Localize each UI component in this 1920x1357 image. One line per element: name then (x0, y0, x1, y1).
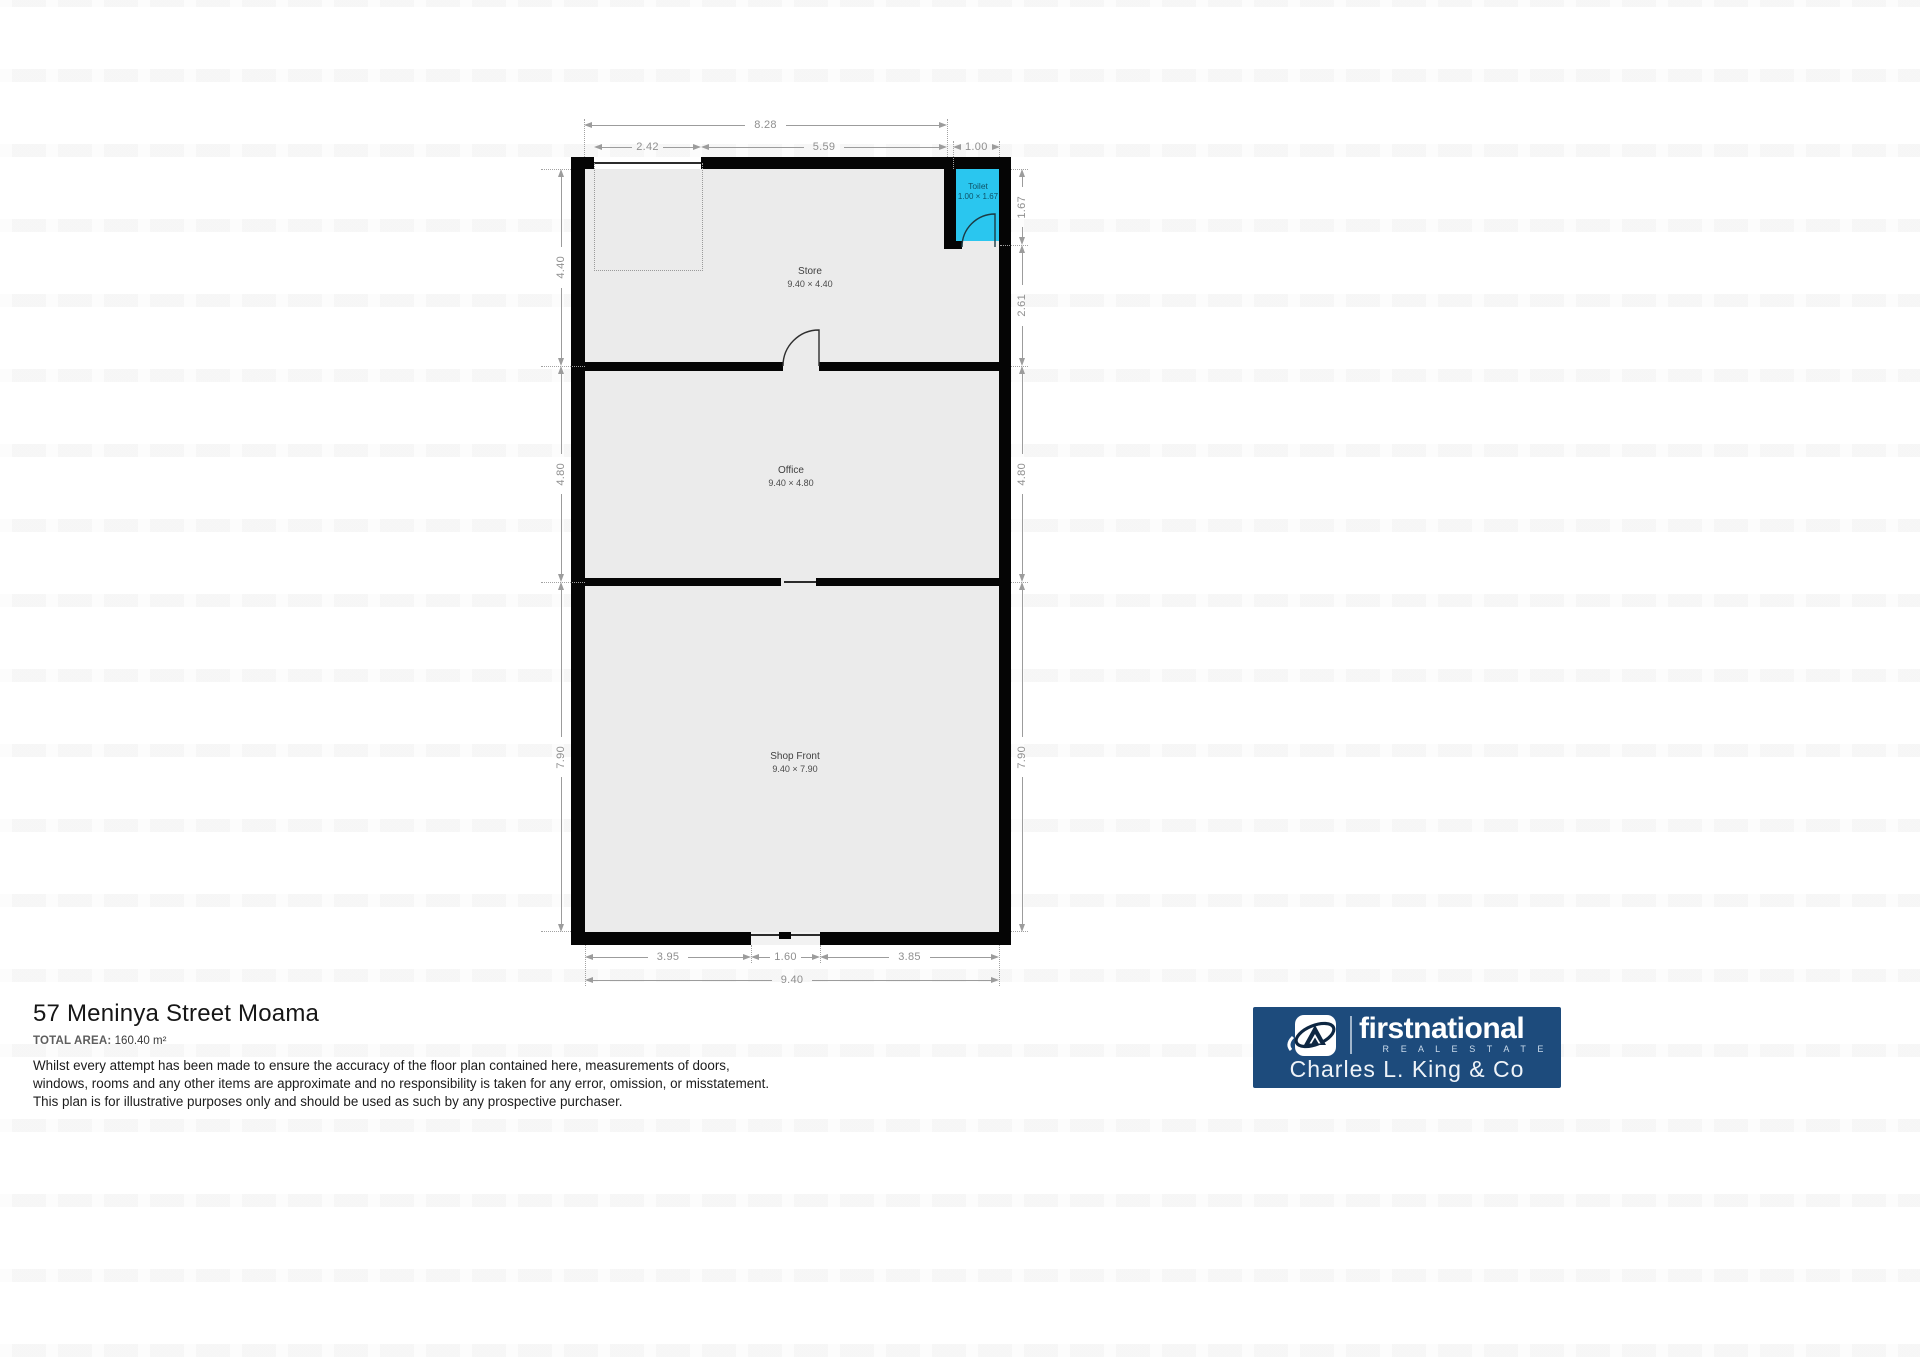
dim-label: 8.28 (745, 119, 786, 131)
agency-logo: firstnational R E A L E S T A T E Charle… (1253, 1007, 1561, 1088)
dim-label: 1.60 (770, 951, 801, 963)
page: { "colors": { "wall": "#050505", "room_f… (0, 0, 1920, 1357)
dim-right-store: 2.61 (1016, 245, 1028, 366)
door-arcs (0, 0, 1920, 1357)
dim-top-mid: 5.59 (701, 141, 947, 153)
dim-label: 7.90 (1016, 737, 1028, 778)
room-size: 9.40 × 4.80 (768, 478, 813, 489)
dim-right-shop: 7.90 (1016, 582, 1028, 932)
dim-bottom-total: 9.40 (585, 974, 999, 986)
dim-label: 9.40 (772, 974, 813, 986)
floor-plan: Store 9.40 × 4.40 Office 9.40 × 4.80 Sho… (0, 0, 1920, 1357)
dim-right-office: 4.80 (1016, 366, 1028, 582)
company-name: Charles L. King & Co (1253, 1056, 1561, 1083)
dim-label: 7.90 (555, 737, 567, 778)
room-name: Store (787, 266, 832, 279)
brand-name: firstnational (1359, 1012, 1524, 1046)
dim-bottom-right: 3.85 (820, 951, 999, 963)
disclaimer-line: Whilst every attempt has been made to en… (33, 1057, 769, 1075)
dim-bottom-left: 3.95 (585, 951, 751, 963)
brand-row: firstnational R E A L E S T A T E (1253, 1007, 1561, 1059)
logo-divider (1350, 1016, 1352, 1054)
total-area: TOTAL AREA: 160.40 m² (33, 1035, 769, 1047)
page-title: 57 Meninya Street Moama (33, 1000, 769, 1028)
dim-top-toilet: 1.00 (953, 141, 999, 153)
dim-label: 3.85 (889, 951, 930, 963)
room-name: Toilet (958, 181, 998, 192)
dim-left-office: 4.80 (555, 366, 567, 582)
dim-label: 2.42 (632, 141, 663, 153)
room-size: 1.00 × 1.67 (958, 192, 998, 202)
dim-bottom-door: 1.60 (751, 951, 820, 963)
room-size: 9.40 × 4.40 (787, 279, 832, 290)
door-arc-toilet (962, 214, 995, 247)
dim-label: 1.67 (1016, 187, 1028, 228)
dim-label: 4.80 (555, 454, 567, 495)
total-area-label: TOTAL AREA: (33, 1035, 111, 1047)
dim-label: 1.00 (961, 141, 992, 153)
dim-label: 2.61 (1016, 285, 1028, 326)
room-size: 9.40 × 7.90 (770, 764, 819, 775)
dim-left-store: 4.40 (555, 169, 567, 366)
dim-label: 4.40 (555, 247, 567, 288)
dim-label: 5.59 (804, 141, 845, 153)
disclaimer-line: This plan is for illustrative purposes o… (33, 1093, 769, 1111)
dim-label: 4.80 (1016, 454, 1028, 495)
room-name: Office (768, 465, 813, 478)
room-name: Shop Front (770, 751, 819, 764)
dim-top-total: 8.28 (584, 119, 947, 131)
dim-label: 3.95 (648, 951, 689, 963)
firstnational-logo-icon (1286, 1013, 1344, 1059)
disclaimer: Whilst every attempt has been made to en… (33, 1057, 769, 1111)
room-label-office: Office 9.40 × 4.80 (768, 465, 813, 489)
room-label-shop-front: Shop Front 9.40 × 7.90 (770, 751, 819, 775)
disclaimer-line: windows, rooms and any other items are a… (33, 1075, 769, 1093)
dim-left-shop: 7.90 (555, 582, 567, 932)
room-label-toilet: Toilet 1.00 × 1.67 (958, 181, 998, 202)
room-label-store: Store 9.40 × 4.40 (787, 266, 832, 290)
brand-tagline: R E A L E S T A T E (1383, 1044, 1548, 1054)
total-area-value: 160.40 m² (115, 1035, 167, 1047)
door-arc-store (783, 330, 819, 366)
dim-top-left: 2.42 (594, 141, 701, 153)
footer: 57 Meninya Street Moama TOTAL AREA: 160.… (33, 1000, 769, 1111)
dim-right-toilet: 1.67 (1016, 169, 1028, 245)
